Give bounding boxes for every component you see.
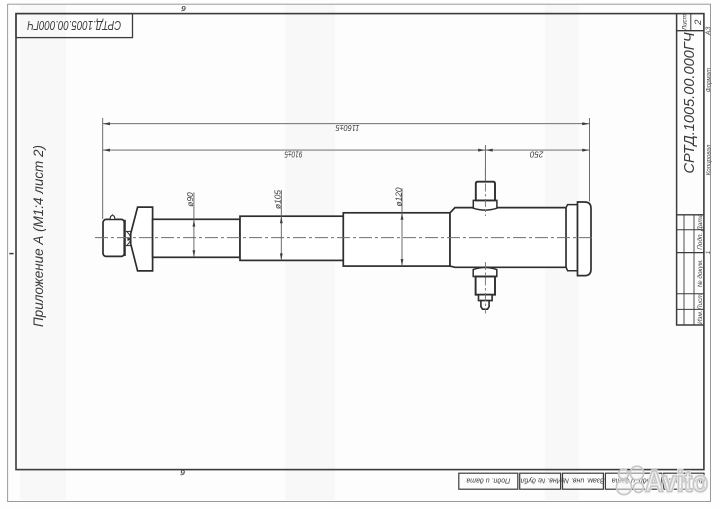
svg-text:Копировал: Копировал <box>706 144 713 175</box>
svg-text:ø90: ø90 <box>186 192 195 207</box>
svg-text:ø105: ø105 <box>273 190 282 209</box>
svg-text:Avito: Avito <box>645 466 708 499</box>
svg-text:Подп.: Подп. <box>696 233 704 250</box>
svg-text:Изм.: Изм. <box>697 310 704 324</box>
svg-text:250: 250 <box>530 149 545 159</box>
svg-text:1: 1 <box>706 251 712 254</box>
svg-text:Лист: Лист <box>682 14 689 31</box>
svg-text:Приложение А (М1:4 лист 2): Приложение А (М1:4 лист 2) <box>31 145 46 327</box>
svg-text:Подп. и дата: Подп. и дата <box>466 477 510 485</box>
svg-text:Дата: Дата <box>697 213 704 231</box>
svg-text:б: б <box>180 468 185 477</box>
svg-text:2: 2 <box>693 19 704 26</box>
svg-text:Инв. № дубл.: Инв. № дубл. <box>519 477 562 485</box>
svg-text:Лист: Лист <box>697 293 704 311</box>
svg-text:1160±5: 1160±5 <box>335 123 359 133</box>
svg-text:А3: А3 <box>706 27 713 37</box>
svg-text:ø120: ø120 <box>395 187 404 206</box>
svg-text:№ докум.: № докум. <box>696 259 704 287</box>
svg-text:СРТД.1005.00.000ГЧ: СРТД.1005.00.000ГЧ <box>681 32 698 174</box>
svg-text:б: б <box>181 4 186 13</box>
svg-text:Взам. инв. №: Взам. инв. № <box>561 477 605 484</box>
svg-text:Формат: Формат <box>706 68 713 93</box>
svg-text:СРТД.1005.00.000ГЧ: СРТД.1005.00.000ГЧ <box>27 18 121 33</box>
svg-text:910±5: 910±5 <box>284 150 302 160</box>
